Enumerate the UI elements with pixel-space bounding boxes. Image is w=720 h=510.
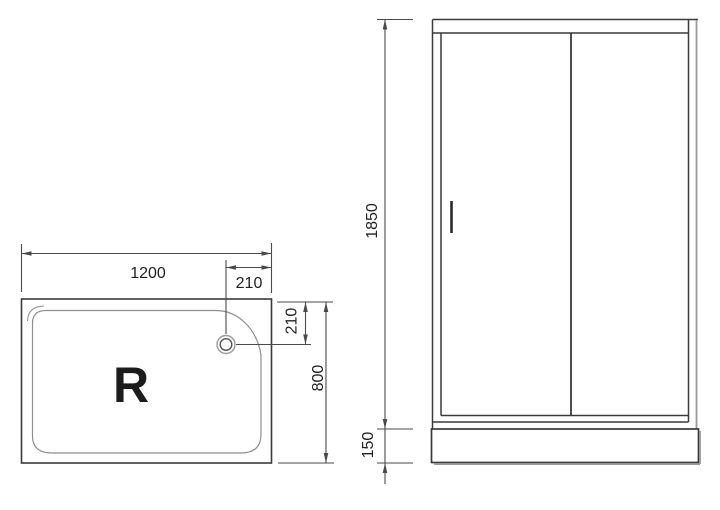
- dim-label-800: 800: [310, 365, 327, 392]
- dimension-150: 150: [360, 429, 413, 484]
- dimension-210-horizontal: 210: [226, 260, 272, 334]
- dim-label-210-vertical: 210: [284, 308, 301, 335]
- dim-label-210-horizontal: 210: [236, 275, 263, 292]
- dim-label-150: 150: [360, 432, 377, 459]
- tray-orientation-label: R: [113, 357, 149, 413]
- tray-top-view: R: [22, 299, 272, 463]
- dimension-210-vertical: 210: [236, 302, 333, 345]
- dim-label-1200: 1200: [130, 265, 166, 282]
- tray-front-panel: [432, 429, 699, 463]
- drawing-svg: R 1200 210 210 800: [0, 0, 720, 510]
- technical-drawing: R 1200 210 210 800: [0, 0, 720, 510]
- dimension-1850: 1850: [364, 20, 413, 430]
- drain-icon-inner: [220, 339, 232, 351]
- dim-label-1850: 1850: [364, 203, 381, 239]
- cabin-front-view: [432, 20, 701, 465]
